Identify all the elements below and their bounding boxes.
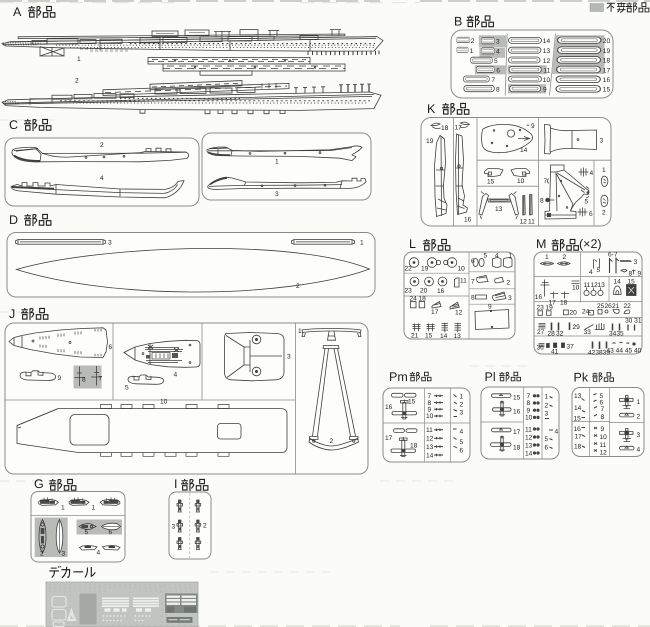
- svg-text:14: 14: [525, 451, 533, 458]
- svg-text:1: 1: [545, 394, 549, 401]
- svg-text:6: 6: [589, 211, 593, 218]
- svg-text:11: 11: [460, 278, 467, 285]
- svg-text:3: 3: [275, 191, 279, 198]
- svg-text:14: 14: [440, 333, 448, 340]
- svg-text:7: 7: [601, 406, 605, 413]
- svg-text:15: 15: [603, 87, 611, 94]
- svg-text:8: 8: [496, 87, 500, 94]
- svg-text:D: D: [9, 213, 18, 227]
- svg-text:9: 9: [601, 426, 605, 433]
- svg-text:15: 15: [408, 399, 416, 406]
- svg-text:20: 20: [603, 38, 611, 45]
- svg-text:2: 2: [507, 280, 511, 287]
- svg-text:16: 16: [574, 426, 582, 433]
- svg-text:1: 1: [602, 167, 606, 174]
- svg-text:30 31: 30 31: [625, 318, 642, 325]
- svg-text:13: 13: [574, 393, 582, 400]
- svg-text:13: 13: [426, 444, 434, 451]
- svg-text:28: 28: [548, 331, 556, 338]
- svg-text:3: 3: [460, 410, 464, 417]
- svg-text:1: 1: [275, 159, 279, 166]
- svg-text:8: 8: [527, 400, 531, 407]
- svg-text:7: 7: [471, 279, 475, 286]
- svg-text:8: 8: [471, 295, 475, 302]
- svg-text:2: 2: [75, 78, 79, 85]
- svg-text:15: 15: [513, 395, 521, 402]
- svg-text:11: 11: [426, 427, 433, 434]
- svg-text:22: 22: [624, 303, 632, 310]
- svg-text:17: 17: [603, 67, 611, 74]
- svg-text:3435: 3435: [609, 331, 624, 338]
- svg-text:18: 18: [410, 443, 418, 450]
- svg-text:2: 2: [471, 38, 475, 45]
- svg-text:18: 18: [574, 444, 582, 451]
- svg-text:10: 10: [160, 399, 168, 406]
- svg-text:5: 5: [494, 58, 498, 65]
- svg-text:1: 1: [545, 254, 549, 261]
- svg-text:2: 2: [460, 402, 464, 409]
- svg-text:9: 9: [638, 271, 642, 278]
- svg-text:21: 21: [612, 303, 620, 310]
- svg-text:7: 7: [491, 77, 495, 84]
- svg-text:21: 21: [411, 333, 419, 340]
- svg-text:11: 11: [525, 427, 532, 434]
- svg-text:9: 9: [543, 87, 547, 94]
- svg-text:23: 23: [405, 288, 413, 295]
- svg-text:20: 20: [570, 310, 578, 317]
- svg-text:13: 13: [495, 206, 503, 213]
- svg-text:17: 17: [455, 125, 463, 132]
- svg-text:C: C: [9, 118, 18, 132]
- svg-text:8: 8: [601, 414, 605, 421]
- svg-text:16: 16: [513, 409, 521, 416]
- svg-text:7: 7: [544, 178, 548, 185]
- svg-text:4: 4: [637, 447, 641, 454]
- svg-text:13: 13: [454, 333, 462, 340]
- svg-text:12: 12: [543, 58, 551, 65]
- svg-text:11: 11: [528, 219, 535, 226]
- svg-text:3: 3: [496, 39, 500, 46]
- svg-text:5: 5: [460, 439, 464, 446]
- svg-text:1: 1: [77, 56, 81, 63]
- svg-text:14: 14: [614, 279, 622, 286]
- svg-text:13: 13: [525, 443, 533, 450]
- svg-text:9: 9: [527, 407, 531, 414]
- svg-text:3: 3: [172, 524, 176, 531]
- svg-text:16: 16: [437, 288, 445, 295]
- svg-text:11: 11: [600, 442, 607, 449]
- svg-text:18: 18: [603, 58, 611, 65]
- svg-text:12: 12: [520, 219, 528, 226]
- svg-text:32: 32: [556, 331, 564, 338]
- svg-text:14: 14: [574, 405, 582, 412]
- svg-text:8: 8: [82, 377, 86, 384]
- svg-text:9: 9: [58, 375, 62, 382]
- svg-text:6: 6: [460, 448, 464, 455]
- svg-text:3: 3: [508, 295, 512, 302]
- svg-text:3: 3: [637, 432, 641, 439]
- svg-text:19: 19: [603, 48, 611, 55]
- svg-text:6: 6: [545, 445, 549, 452]
- svg-text:2: 2: [637, 414, 641, 421]
- svg-text:1: 1: [460, 394, 464, 401]
- svg-text:(×2): (×2): [579, 237, 602, 251]
- svg-text:J: J: [9, 307, 15, 321]
- svg-text:18: 18: [441, 125, 449, 132]
- svg-text:1: 1: [470, 48, 474, 55]
- svg-text:2: 2: [545, 403, 549, 410]
- svg-text:2: 2: [296, 283, 300, 290]
- svg-text:14: 14: [543, 38, 551, 45]
- svg-text:1: 1: [61, 505, 65, 512]
- svg-text:19: 19: [426, 138, 434, 145]
- svg-text:10: 10: [600, 434, 608, 441]
- svg-text:B: B: [454, 15, 462, 29]
- svg-text:41: 41: [551, 349, 559, 356]
- svg-text:1: 1: [360, 240, 364, 247]
- svg-text:3: 3: [545, 411, 549, 418]
- svg-text:5: 5: [125, 385, 129, 392]
- svg-text:6: 6: [109, 529, 113, 536]
- svg-text:3: 3: [62, 551, 66, 558]
- svg-text:5: 5: [484, 253, 488, 260]
- svg-text:17: 17: [513, 429, 521, 436]
- svg-text:10: 10: [458, 266, 466, 273]
- svg-text:15: 15: [487, 179, 495, 186]
- svg-text:10: 10: [426, 413, 434, 420]
- svg-text:3: 3: [634, 259, 638, 266]
- svg-text:4: 4: [174, 372, 178, 379]
- svg-text:4: 4: [590, 170, 594, 177]
- svg-text:15: 15: [425, 333, 433, 340]
- svg-text:4: 4: [496, 49, 500, 56]
- svg-text:19: 19: [421, 266, 429, 273]
- svg-text:3: 3: [287, 354, 291, 361]
- svg-text:1: 1: [509, 253, 513, 260]
- svg-text:16: 16: [464, 217, 472, 224]
- svg-text:Pk: Pk: [574, 371, 589, 385]
- svg-text:6-7: 6-7: [608, 252, 618, 259]
- svg-text:14: 14: [520, 147, 528, 154]
- svg-text:29: 29: [573, 324, 581, 331]
- svg-text:4: 4: [100, 175, 104, 182]
- svg-text:10: 10: [517, 178, 525, 185]
- svg-text:6: 6: [496, 68, 500, 75]
- svg-text:A: A: [13, 5, 22, 19]
- svg-text:15: 15: [574, 416, 582, 423]
- svg-text:13: 13: [543, 48, 551, 55]
- svg-text:1: 1: [298, 328, 302, 335]
- svg-text:10: 10: [543, 77, 551, 84]
- svg-text:10: 10: [525, 415, 533, 422]
- svg-text:8: 8: [629, 271, 633, 278]
- svg-text:7: 7: [99, 376, 103, 383]
- svg-text:16: 16: [535, 294, 543, 301]
- svg-text:G: G: [34, 477, 44, 491]
- svg-text:13: 13: [598, 282, 606, 289]
- svg-text:Pm: Pm: [389, 370, 408, 384]
- svg-text:2: 2: [100, 142, 104, 149]
- svg-text:18: 18: [560, 300, 568, 307]
- svg-text:3: 3: [600, 138, 604, 145]
- svg-text:M: M: [536, 237, 546, 251]
- svg-text:12: 12: [525, 435, 533, 442]
- svg-text:18: 18: [513, 445, 521, 452]
- svg-text:I: I: [174, 477, 177, 491]
- svg-text:8: 8: [540, 198, 544, 205]
- svg-text:9: 9: [531, 123, 535, 130]
- svg-text:22: 22: [405, 266, 413, 273]
- svg-text:17: 17: [575, 434, 583, 441]
- svg-text:2: 2: [602, 210, 606, 217]
- svg-text:5: 5: [597, 267, 601, 274]
- svg-text:5: 5: [545, 436, 549, 443]
- svg-text:17: 17: [431, 309, 439, 316]
- svg-text:4: 4: [495, 253, 499, 260]
- svg-text:2: 2: [563, 254, 567, 261]
- svg-text:20: 20: [420, 288, 428, 295]
- svg-text:9: 9: [488, 304, 492, 311]
- svg-text:33: 33: [584, 329, 592, 336]
- svg-text:6: 6: [109, 344, 113, 351]
- svg-text:11: 11: [543, 67, 550, 74]
- svg-text:14: 14: [426, 452, 434, 459]
- svg-text:5: 5: [585, 199, 589, 206]
- svg-text:4: 4: [97, 550, 101, 557]
- svg-text:27: 27: [537, 329, 545, 336]
- svg-text:3: 3: [108, 240, 112, 247]
- svg-text:2: 2: [330, 438, 334, 445]
- svg-text:K: K: [427, 102, 436, 116]
- svg-text:1: 1: [637, 399, 641, 406]
- svg-text:4: 4: [555, 429, 559, 436]
- svg-text:12: 12: [455, 310, 463, 317]
- svg-text:2: 2: [203, 523, 207, 530]
- svg-text:12: 12: [426, 436, 434, 443]
- svg-text:1: 1: [92, 505, 96, 512]
- svg-text:7: 7: [527, 393, 531, 400]
- svg-text:4: 4: [460, 429, 464, 436]
- svg-text:10: 10: [572, 285, 580, 292]
- svg-text:36: 36: [537, 345, 545, 352]
- svg-text:37: 37: [567, 344, 575, 351]
- svg-text:16: 16: [385, 404, 393, 411]
- svg-text:4: 4: [589, 269, 593, 276]
- svg-text:L: L: [409, 237, 416, 251]
- svg-text:5: 5: [85, 529, 89, 536]
- svg-text:43 44 45 40: 43 44 45 40: [607, 348, 642, 355]
- svg-text:Pl: Pl: [485, 370, 496, 384]
- svg-text:2: 2: [40, 551, 44, 558]
- svg-text:16: 16: [603, 77, 611, 84]
- svg-text:12: 12: [600, 450, 608, 457]
- svg-text:17: 17: [385, 435, 393, 442]
